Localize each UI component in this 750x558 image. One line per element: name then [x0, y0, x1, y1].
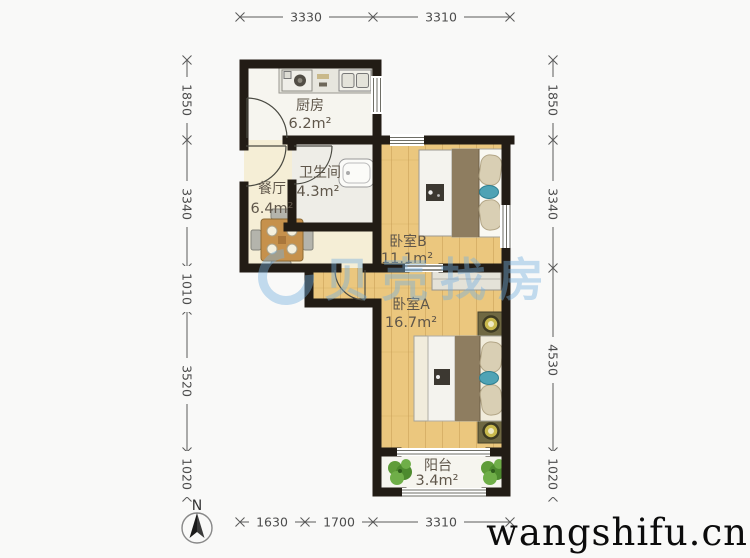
chair [251, 230, 261, 250]
compass-north-label: N [192, 498, 202, 514]
dim-top-1: 3330 [290, 10, 322, 25]
room-area-bathroom: 4.3m² [297, 184, 340, 200]
bed-ornament [480, 186, 499, 199]
room-area-bedroom-b: 11.1m² [381, 251, 433, 267]
bathtub-icon [339, 159, 374, 187]
dim-right-4: 1020 [546, 458, 561, 490]
dim-bottom-1: 1630 [256, 515, 288, 530]
room-label-dining: 餐厅 [258, 181, 286, 197]
kitchen-window [371, 76, 383, 114]
room-area-dining: 6.4m² [251, 201, 294, 217]
bed-ornament [480, 372, 499, 385]
dim-top-2: 3310 [425, 10, 457, 25]
balcony-door-window [397, 448, 490, 456]
dim-bottom-2: 1700 [323, 515, 355, 530]
dim-right-1: 1850 [546, 84, 561, 116]
dim-left-5: 1020 [180, 458, 195, 490]
floorplan-svg: 厨房 6.2m² 餐厅 6.4m² 卫生间 4.3m² 卧室B 11.1m² 卧… [0, 0, 750, 558]
watermark-wangshifu: wangshifu.cn [486, 511, 748, 554]
dim-left-1: 1850 [180, 84, 195, 116]
kitchen-furniture [279, 68, 372, 93]
room-label-bathroom: 卫生间 [299, 165, 341, 181]
counter-item [317, 74, 329, 79]
room-area-kitchen: 6.2m² [289, 116, 332, 132]
dim-right-2: 3340 [546, 188, 561, 220]
dim-right-3: 4530 [546, 344, 561, 376]
floorplan-image: 厨房 6.2m² 餐厅 6.4m² 卫生间 4.3m² 卧室B 11.1m² 卧… [0, 0, 750, 558]
dim-bottom-3: 3310 [425, 515, 457, 530]
bedroom-b-east-window [500, 205, 512, 248]
dim-left-2: 3340 [180, 188, 195, 220]
bedroom-b-north-window [390, 134, 424, 146]
balcony-railing [402, 488, 486, 496]
room-label-balcony: 阳台 [424, 458, 452, 474]
room-area-balcony: 3.4m² [416, 473, 459, 489]
room-label-bedroom-b: 卧室B [389, 233, 427, 250]
compass: N [182, 498, 212, 543]
dim-left-4: 3520 [180, 365, 195, 397]
chair [303, 230, 313, 250]
room-label-kitchen: 厨房 [296, 98, 324, 114]
dim-left-3: 1010 [180, 273, 195, 305]
bedroom-b-furniture [419, 149, 506, 237]
compass-needle-icon [190, 513, 198, 538]
compass-needle-icon [197, 513, 205, 538]
room-label-bedroom-a: 卧室A [392, 296, 430, 313]
room-area-bedroom-a: 16.7m² [385, 315, 437, 331]
